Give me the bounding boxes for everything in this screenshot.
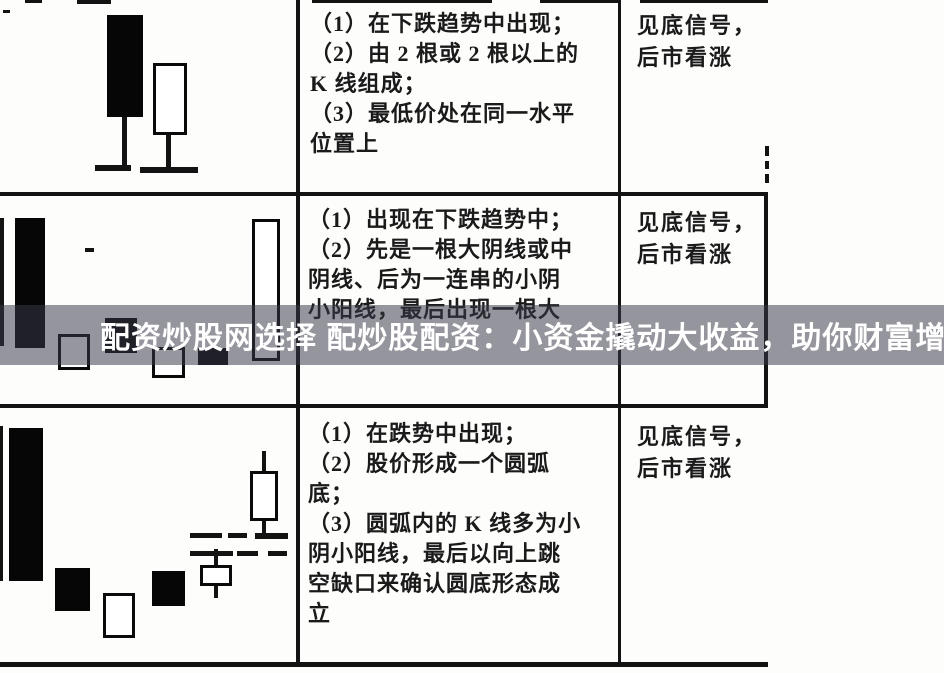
table-border-vertical (765, 146, 769, 156)
candle-wick-dash (140, 167, 198, 173)
candle-wick-dash (262, 451, 266, 471)
candlestick-hollow (103, 593, 135, 638)
signal-line: 后市看涨 (637, 42, 757, 74)
candlestick-filled (55, 568, 90, 611)
signal-conclusion: 见底信号，后市看涨 (637, 10, 757, 74)
description-line: （1）出现在下跌趋势中； (308, 205, 573, 235)
candlestick-hollow (250, 471, 278, 521)
signal-line: 见底信号， (637, 207, 757, 239)
table-border-horizontal (77, 0, 111, 4)
pattern-description: （1）在跌势中出现；（2）股价形成一个圆弧底；（3）圆弧内的 K 线多为小阴小阳… (308, 419, 581, 629)
description-line: 位置上 (310, 129, 579, 159)
description-line: （2）先是一根大阴线或中 (308, 235, 573, 265)
description-line: 底； (308, 479, 581, 509)
description-line: 阴小阳线，最后以向上跳 (308, 539, 581, 569)
candle-wick-dash (166, 135, 171, 168)
candle-wick-dash (214, 586, 218, 598)
candle-wick-dash (237, 551, 258, 556)
description-line: （1）在下跌趋势中出现； (310, 9, 579, 39)
candlestick-filled (107, 15, 143, 117)
description-line: 阴线、后为一连串的小阴 (308, 265, 573, 295)
table-border-horizontal (312, 0, 492, 3)
candle-wick-dash (85, 248, 94, 252)
candle-wick-dash (268, 551, 287, 556)
description-line: （1）在跌势中出现； (308, 419, 581, 449)
candle-wick-dash (255, 533, 288, 539)
description-line: 空缺口来确认圆底形态成 (308, 569, 581, 599)
table-border-horizontal (540, 0, 618, 3)
table-border-horizontal (640, 0, 768, 3)
table-border-vertical (765, 161, 769, 169)
table-border-vertical (765, 174, 769, 183)
table-border-horizontal (0, 192, 768, 196)
scanned-kline-pattern-page: （1）在下跌趋势中出现；（2）由 2 根或 2 根以上的K 线组成；（3）最低价… (0, 0, 944, 673)
candle-wick-dash (262, 521, 266, 533)
table-border-vertical (0, 426, 3, 581)
ad-overlay-banner: 配资炒股网选择 配炒股配资：小资金撬动大收益，助你财富增值 (0, 305, 944, 365)
pattern-description: （1）在下跌趋势中出现；（2）由 2 根或 2 根以上的K 线组成；（3）最低价… (310, 9, 579, 159)
description-line: （2）由 2 根或 2 根以上的 (310, 39, 579, 69)
candlestick-hollow (153, 63, 187, 135)
signal-line: 后市看涨 (637, 239, 757, 271)
description-line: （3）最低价处在同一水平 (310, 99, 579, 129)
description-line: （2）股价形成一个圆弧 (308, 449, 581, 479)
description-line: K 线组成； (310, 69, 579, 99)
signal-line: 后市看涨 (637, 453, 757, 485)
table-border-horizontal (0, 404, 768, 408)
table-border-vertical (764, 193, 768, 407)
signal-conclusion: 见底信号，后市看涨 (637, 421, 757, 485)
table-border-horizontal (25, 0, 42, 3)
candle-wick-dash (122, 117, 127, 167)
signal-conclusion: 见底信号，后市看涨 (637, 207, 757, 271)
candle-wick-dash (95, 165, 131, 171)
description-line: （3）圆弧内的 K 线多为小 (308, 509, 581, 539)
candlestick-hollow (200, 565, 232, 586)
candlestick-filled (152, 571, 185, 606)
signal-line: 见底信号， (637, 421, 757, 453)
description-line: 立 (308, 599, 581, 629)
ad-overlay-text: 配资炒股网选择 配炒股配资：小资金撬动大收益，助你财富增值 (100, 313, 944, 357)
table-border-horizontal (3, 10, 10, 13)
signal-line: 见底信号， (637, 10, 757, 42)
candle-wick-dash (190, 551, 233, 556)
candle-wick-dash (228, 533, 247, 538)
candle-wick-dash (190, 533, 222, 538)
candlestick-filled (9, 428, 43, 581)
table-border-horizontal (0, 662, 768, 667)
